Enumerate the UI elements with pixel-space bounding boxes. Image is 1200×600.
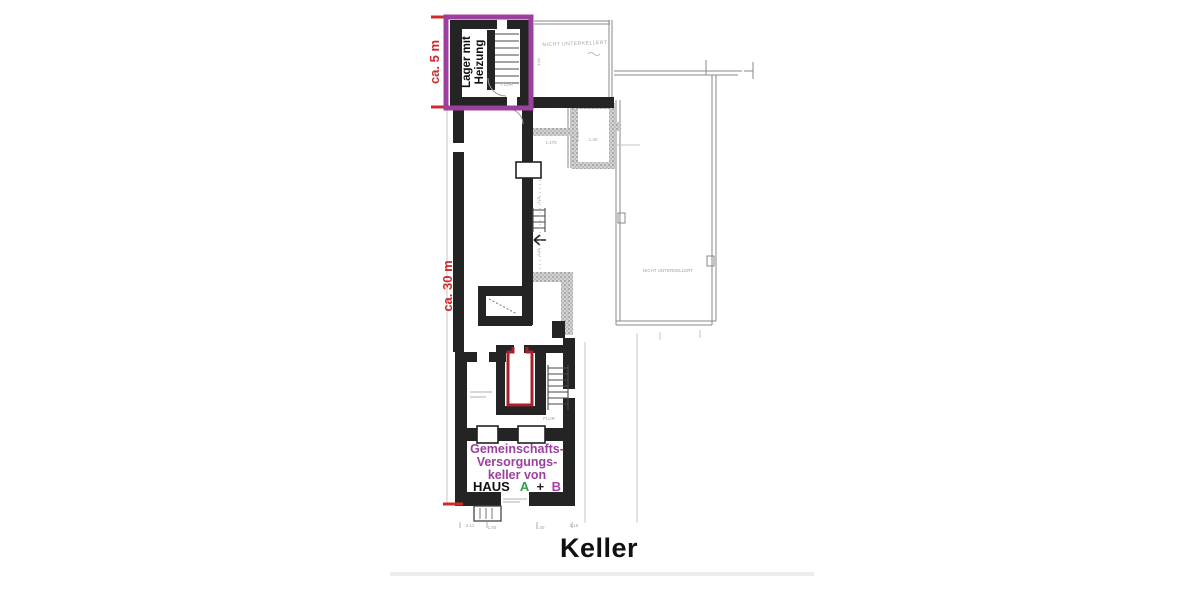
community-line2: Versorgungs- (477, 455, 558, 469)
scan-streak (390, 572, 814, 576)
wall-pillar (707, 256, 714, 266)
dim-mark: 1.18 (570, 523, 579, 528)
dim-mark: 1.40 (589, 137, 598, 142)
dim-mark: 1.01 (536, 195, 541, 204)
dim-30m-label: ca. 30 m (440, 260, 455, 311)
flur-label: FLUR (501, 82, 514, 87)
flur-label: FLUR (543, 416, 556, 421)
dim-5m-label: ca. 5 m (427, 40, 442, 84)
squiggle-mark (588, 53, 600, 56)
community-room-label: Gemeinschafts- Versorgungs- keller von H… (470, 442, 564, 494)
lager-room-label: Lager mit Heizung (461, 36, 486, 88)
nicht-unterkellert-label: NICHT UNTERKELLERT (643, 268, 694, 273)
dim-mark: 1.93 (488, 525, 497, 530)
scanned-floor-plan-page: ca. 5 m ca. 30 m Lager mit Heizung NICHT… (0, 0, 1200, 600)
lager-label-line1: Lager mit (461, 36, 473, 88)
community-line1: Gemeinschafts- (470, 442, 564, 456)
dim-mark: 1.11 (466, 523, 475, 528)
dim-mark: 1.40 (536, 525, 545, 530)
nicht-unterkellert-label: NICHT UNTERKELLERT (542, 40, 607, 48)
door-openings (477, 162, 545, 443)
page-title: Keller (560, 533, 638, 563)
lager-label-line2: Heizung (474, 40, 486, 85)
red-room-outline (508, 347, 532, 405)
ramp-dotted-line (489, 299, 517, 314)
exit-stair-protrusion (474, 506, 501, 521)
dim-mark: 2.465 (575, 130, 580, 141)
dim-mark: 1.475 (545, 140, 557, 145)
dim-mark: 4.85 (536, 247, 541, 256)
wall-pillar (618, 213, 625, 223)
keller-floor-plan: ca. 5 m ca. 30 m Lager mit Heizung NICHT… (0, 0, 1200, 600)
dim-mark: 4.80 (536, 57, 541, 66)
